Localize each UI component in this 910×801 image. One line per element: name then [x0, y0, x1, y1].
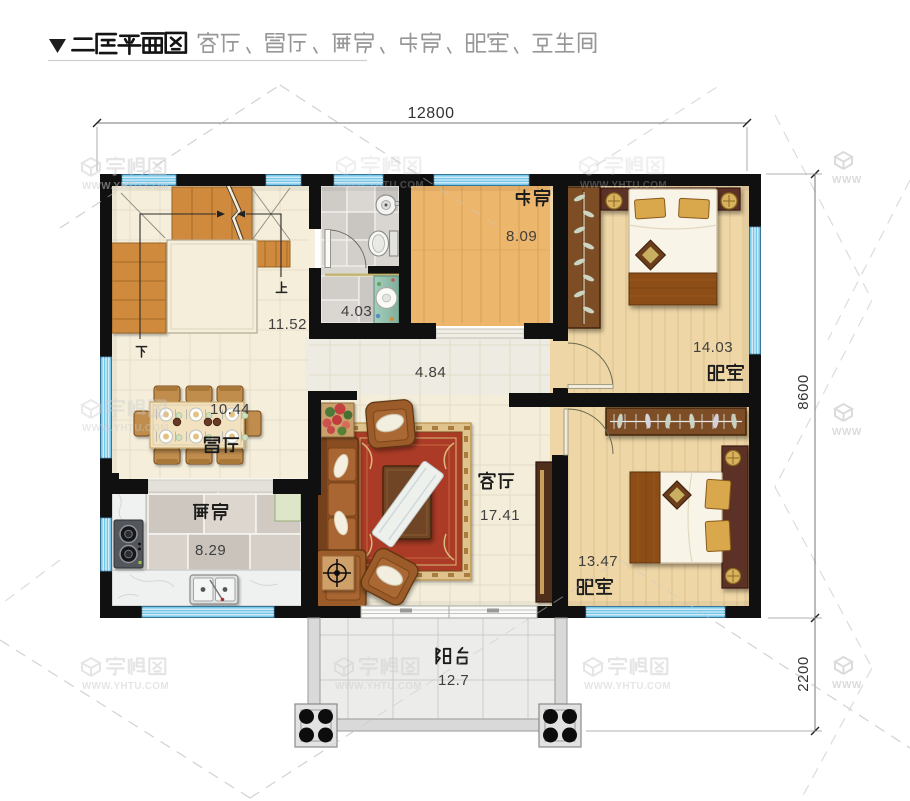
svg-text:WWW.YHTU.COM: WWW.YHTU.COM — [335, 681, 422, 692]
svg-text:8600: 8600 — [795, 374, 812, 409]
svg-text:WWW: WWW — [832, 175, 862, 186]
svg-text:WWW: WWW — [832, 680, 862, 691]
svg-text:10.44: 10.44 — [210, 401, 250, 418]
svg-text:4.03: 4.03 — [341, 303, 372, 320]
svg-text:8.29: 8.29 — [195, 542, 226, 559]
svg-text:14.03: 14.03 — [693, 339, 733, 356]
svg-text:2200: 2200 — [795, 656, 812, 691]
svg-text:WWW: WWW — [832, 427, 862, 438]
svg-text:4.84: 4.84 — [415, 364, 446, 381]
svg-text:13.47: 13.47 — [578, 553, 618, 570]
svg-text:WWW.YHTU.COM: WWW.YHTU.COM — [580, 180, 667, 191]
svg-text:8.09: 8.09 — [506, 228, 537, 245]
svg-text:11.52: 11.52 — [268, 316, 307, 333]
svg-text:12800: 12800 — [408, 105, 455, 122]
svg-text:WWW.YHTU.COM: WWW.YHTU.COM — [337, 180, 424, 191]
svg-text:17.41: 17.41 — [480, 507, 520, 524]
svg-text:WWW.YHTU.COM: WWW.YHTU.COM — [584, 681, 671, 692]
svg-text:WWW.YHTU.COM: WWW.YHTU.COM — [82, 181, 169, 192]
svg-text:WWW.YHTU.COM: WWW.YHTU.COM — [82, 681, 169, 692]
svg-text:WWW.YHTU.COM: WWW.YHTU.COM — [82, 423, 169, 434]
